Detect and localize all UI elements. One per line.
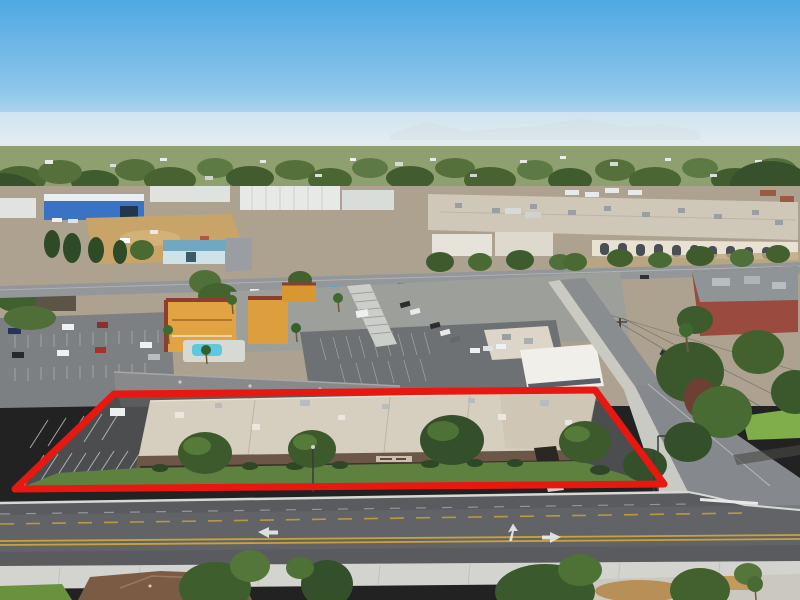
white-van xyxy=(110,408,125,416)
aerial-photo-canvas xyxy=(0,0,800,600)
main-street xyxy=(0,492,800,572)
front-lawn-patch xyxy=(0,584,72,600)
haze-band xyxy=(0,112,800,146)
small-warehouse xyxy=(0,198,36,218)
aerial-photo xyxy=(0,0,800,600)
pool-area xyxy=(183,340,245,362)
white-warehouse xyxy=(240,186,340,210)
teal-building xyxy=(163,240,227,264)
sky-layer xyxy=(0,0,800,150)
parking-tree xyxy=(4,306,56,330)
